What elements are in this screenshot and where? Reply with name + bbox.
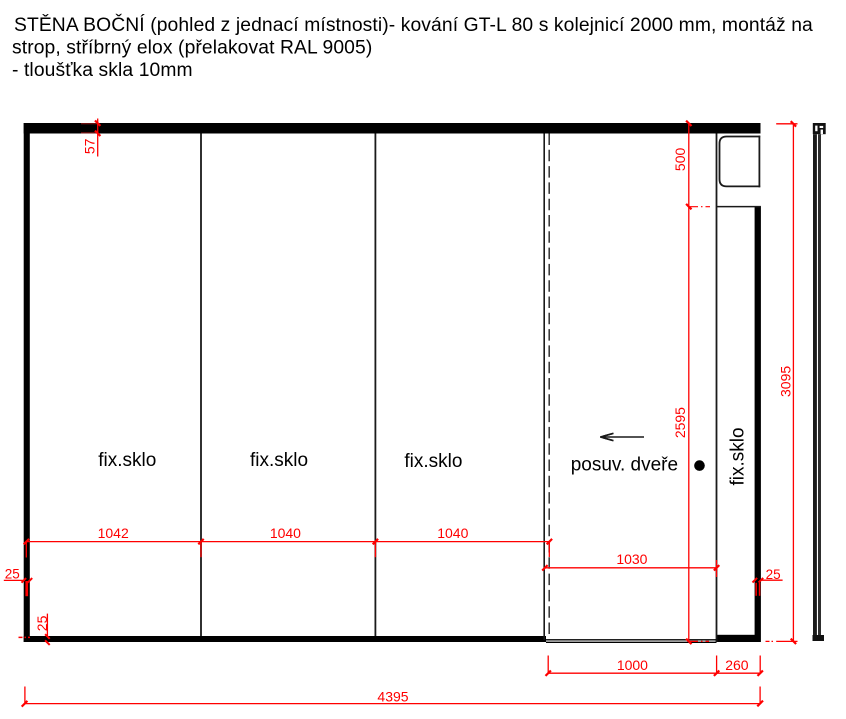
svg-text:fix.sklo: fix.sklo [728,427,749,485]
svg-text:- tloušťka skla 10mm: - tloušťka skla 10mm [12,60,193,81]
svg-text:2595: 2595 [672,407,688,438]
svg-text:STĚNA BOČNÍ (pohled z jednací: STĚNA BOČNÍ (pohled z jednací místnosti)… [14,13,813,36]
svg-text:1042: 1042 [98,525,129,541]
svg-text:1040: 1040 [437,525,468,541]
svg-text:fix.sklo: fix.sklo [404,451,462,472]
svg-text:fix.sklo: fix.sklo [250,450,308,471]
svg-text:25: 25 [5,567,20,582]
svg-text:fix.sklo: fix.sklo [98,450,156,471]
svg-text:strop, stříbrný elox (přelakov: strop, stříbrný elox (přelakovat RAL 900… [12,38,372,59]
svg-text:3095: 3095 [777,366,793,397]
svg-text:1000: 1000 [617,657,648,673]
svg-text:260: 260 [725,657,749,673]
svg-text:57: 57 [82,138,98,154]
svg-text:1040: 1040 [270,525,301,541]
svg-text:4395: 4395 [377,689,408,705]
svg-text:500: 500 [672,148,688,172]
svg-text:1030: 1030 [616,551,647,567]
svg-text:posuv. dveře: posuv. dveře [571,455,678,476]
